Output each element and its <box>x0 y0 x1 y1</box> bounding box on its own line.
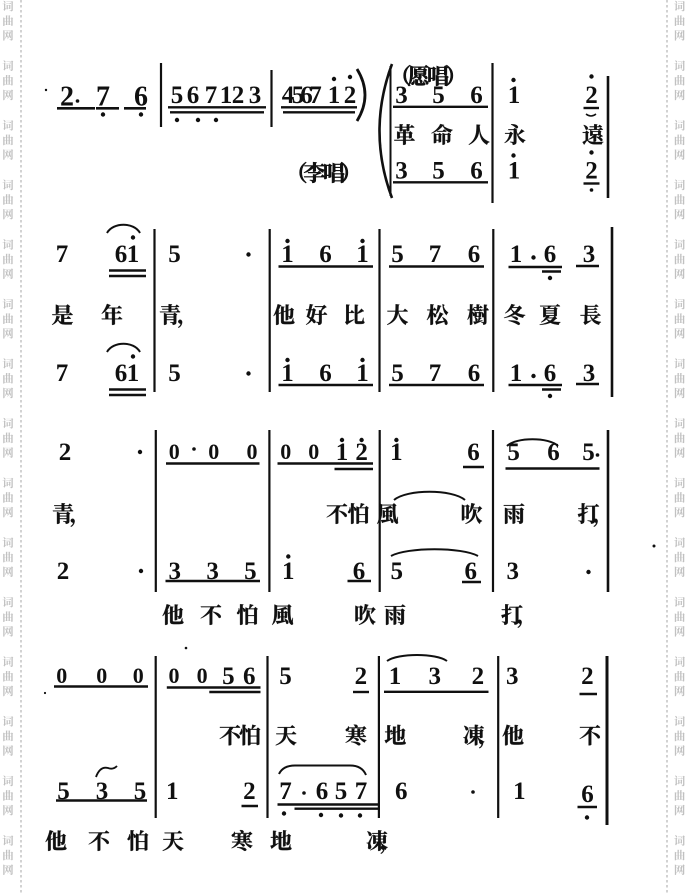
svg-text:5: 5 <box>168 360 181 387</box>
svg-text:2: 2 <box>355 663 368 690</box>
svg-text:6: 6 <box>470 82 483 109</box>
svg-text:1: 1 <box>508 82 521 109</box>
svg-text:5: 5 <box>432 82 445 109</box>
svg-text:1: 1 <box>166 778 179 805</box>
svg-text:3: 3 <box>583 241 596 268</box>
svg-text:0: 0 <box>56 663 67 688</box>
svg-text:6: 6 <box>547 439 560 466</box>
svg-text:1: 1 <box>328 82 341 109</box>
svg-text:5: 5 <box>171 82 184 109</box>
svg-text:1: 1 <box>281 241 294 268</box>
svg-text:6: 6 <box>187 82 200 109</box>
svg-text:1: 1 <box>508 158 521 185</box>
svg-text:1: 1 <box>356 241 369 268</box>
svg-text:6: 6 <box>581 781 594 808</box>
svg-text:6: 6 <box>544 241 557 268</box>
svg-text:3: 3 <box>506 663 519 690</box>
svg-text:7: 7 <box>429 241 442 268</box>
svg-text:6: 6 <box>468 360 481 387</box>
svg-text:5: 5 <box>507 439 520 466</box>
svg-text:1: 1 <box>390 439 403 466</box>
svg-text:6: 6 <box>395 778 408 805</box>
svg-text:7: 7 <box>205 82 218 109</box>
svg-text:5: 5 <box>391 558 404 585</box>
svg-text:2: 2 <box>585 82 598 109</box>
svg-text:1: 1 <box>336 439 349 466</box>
svg-text:1: 1 <box>389 663 402 690</box>
svg-text:2: 2 <box>59 439 72 466</box>
svg-text:5: 5 <box>279 663 292 690</box>
svg-text:2: 2 <box>581 663 594 690</box>
svg-text:1: 1 <box>282 558 295 585</box>
svg-text:5: 5 <box>168 241 181 268</box>
svg-text:3: 3 <box>395 82 408 109</box>
svg-text:2: 2 <box>243 778 256 805</box>
svg-text:0: 0 <box>208 439 219 464</box>
svg-text:1: 1 <box>281 360 294 387</box>
svg-text:3: 3 <box>249 82 262 109</box>
svg-text:6: 6 <box>115 241 128 268</box>
svg-text:7: 7 <box>56 360 69 387</box>
svg-text:5: 5 <box>432 158 445 185</box>
svg-text:6: 6 <box>115 360 128 387</box>
svg-text:1: 1 <box>513 778 526 805</box>
svg-text:0: 0 <box>308 439 319 464</box>
svg-text:5: 5 <box>582 439 595 466</box>
svg-text:1: 1 <box>510 360 523 387</box>
svg-text:0: 0 <box>247 439 258 464</box>
svg-text:7: 7 <box>56 241 69 268</box>
svg-text:2: 2 <box>344 82 357 109</box>
svg-text:5: 5 <box>391 241 404 268</box>
svg-text:2: 2 <box>57 558 70 585</box>
svg-text:1: 1 <box>127 360 140 387</box>
svg-text:2: 2 <box>472 663 485 690</box>
svg-text:1: 1 <box>356 360 369 387</box>
svg-text:0: 0 <box>169 663 180 688</box>
svg-text:5: 5 <box>391 360 404 387</box>
svg-text:2: 2 <box>232 82 245 109</box>
svg-text:6: 6 <box>316 778 329 805</box>
svg-text:7: 7 <box>355 778 368 805</box>
svg-text:6: 6 <box>467 439 480 466</box>
svg-text:0: 0 <box>169 439 180 464</box>
svg-text:2: 2 <box>355 439 368 466</box>
svg-text:5: 5 <box>335 778 348 805</box>
svg-text:7: 7 <box>279 778 292 805</box>
svg-text:6: 6 <box>243 663 256 690</box>
svg-text:3: 3 <box>428 663 441 690</box>
svg-text:7: 7 <box>429 360 442 387</box>
svg-text:5: 5 <box>222 663 235 690</box>
svg-text:0: 0 <box>133 663 144 688</box>
svg-text:6: 6 <box>470 158 483 185</box>
svg-text:6: 6 <box>319 360 332 387</box>
svg-text:1: 1 <box>220 82 233 109</box>
svg-text:2: 2 <box>585 158 598 185</box>
svg-text:7: 7 <box>309 82 322 109</box>
svg-text:6: 6 <box>544 360 557 387</box>
svg-text:0: 0 <box>96 663 107 688</box>
svg-text:6: 6 <box>319 241 332 268</box>
svg-text:0: 0 <box>280 439 291 464</box>
svg-text:6: 6 <box>468 241 481 268</box>
svg-text:1: 1 <box>510 241 523 268</box>
svg-text:1: 1 <box>127 241 140 268</box>
svg-text:3: 3 <box>395 158 408 185</box>
svg-text:0: 0 <box>197 663 208 688</box>
svg-text:3: 3 <box>507 558 520 585</box>
